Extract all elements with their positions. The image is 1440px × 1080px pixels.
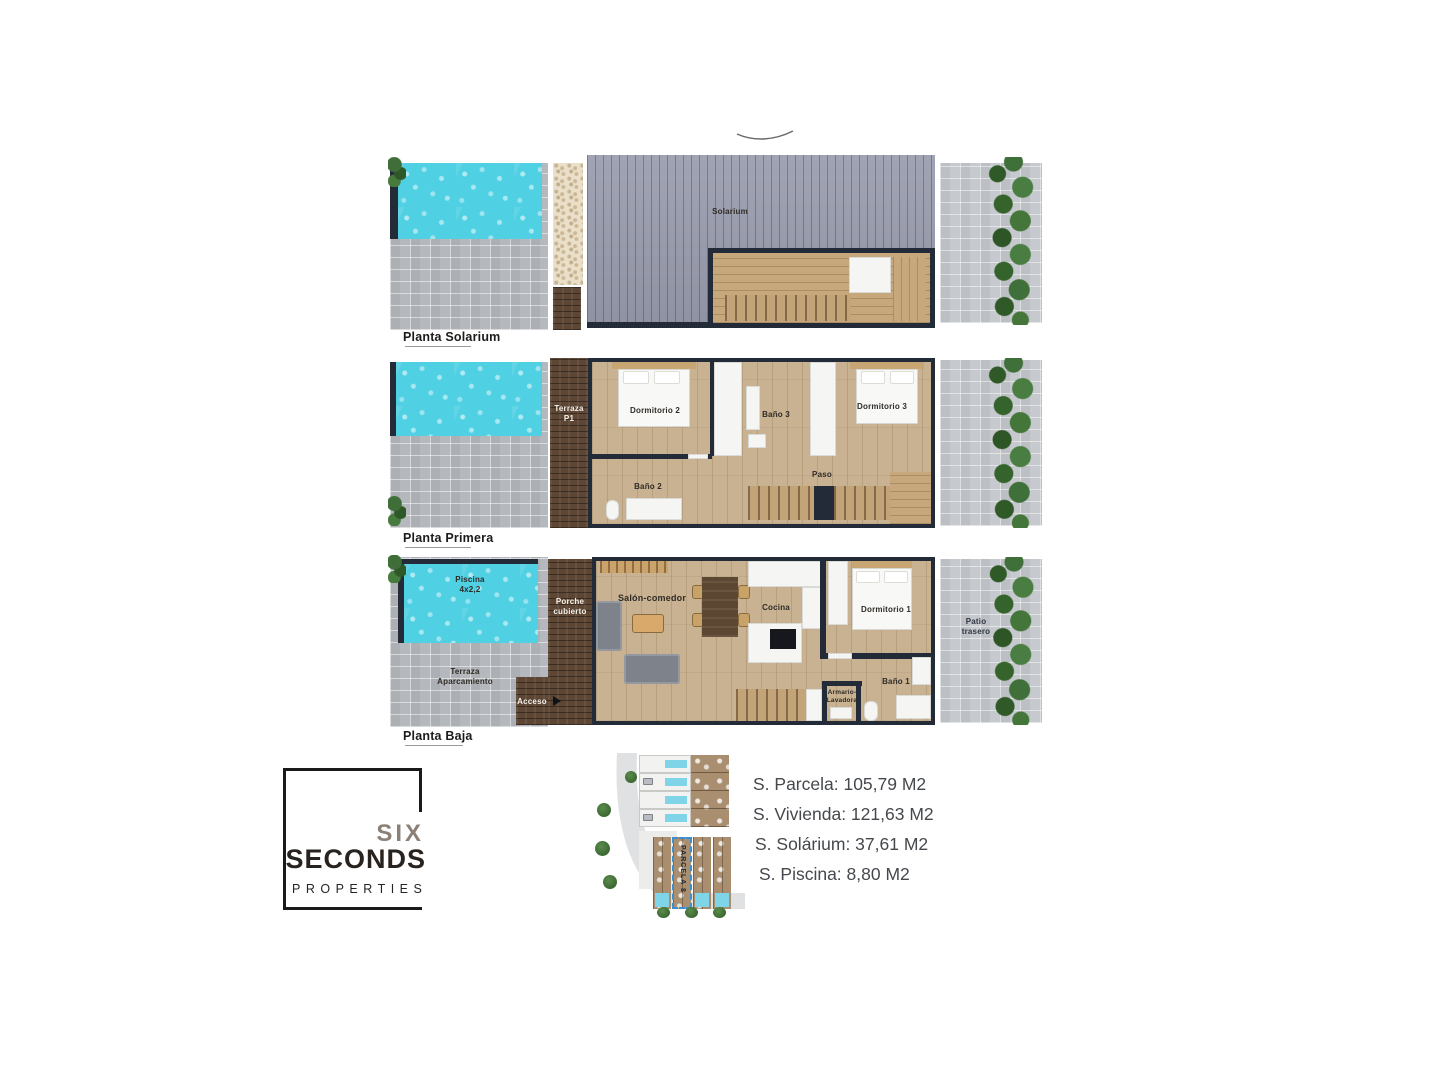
bed-headboard	[852, 561, 912, 568]
bathroom2-toilet	[606, 500, 619, 520]
site-parcel-highlight: PARCELA 8	[672, 837, 692, 909]
plan-solarium: Solarium	[390, 155, 1045, 330]
logo-border-right	[419, 768, 422, 812]
page-curl-mark	[735, 128, 795, 144]
room-label-bano3: Baño 3	[752, 410, 800, 420]
site-tree	[625, 771, 637, 783]
logo-border-top	[283, 768, 422, 771]
room-label-cocina: Cocina	[746, 603, 806, 613]
kitchen-counter	[748, 561, 822, 587]
sofa	[596, 601, 622, 651]
title-underline	[405, 346, 471, 347]
wardrobe	[828, 561, 848, 625]
room-label-dormitorio3: Dormitorio 3	[847, 402, 917, 412]
plan-primera: Terraza P1 Dormitorio 2 Baño 3 Dormitori…	[390, 358, 1045, 528]
dining-chair	[738, 585, 750, 599]
pillow	[654, 371, 680, 384]
washing-machine	[830, 707, 852, 719]
site-plan: PARCELA 8	[595, 753, 745, 918]
corner-plant	[388, 555, 406, 583]
stair-flight	[736, 689, 806, 721]
corner-plant	[388, 496, 406, 526]
site-parcel-label: PARCELA 8	[679, 845, 686, 893]
site-pool	[665, 778, 687, 786]
room-label-paso: Paso	[787, 470, 857, 480]
surface-stats: S. Parcela: 105,79 M2 S. Vivienda: 121,6…	[753, 774, 934, 894]
logo-text-properties: PROPERTIES	[292, 882, 427, 896]
dining-table	[702, 577, 738, 637]
plan-title-primera: Planta Primera	[403, 531, 493, 545]
site-tree	[685, 907, 698, 918]
pillow	[861, 371, 885, 384]
site-tree	[595, 841, 610, 856]
gravel-strip	[553, 163, 583, 285]
plan-baja: Terraza Aparcamiento Piscina 4x2,2 Porch…	[390, 557, 1045, 729]
logo-text-seconds: SECONDS	[285, 844, 426, 875]
bed-headboard	[850, 362, 924, 369]
sofa	[624, 654, 680, 684]
pillow	[856, 571, 880, 583]
site-pool	[665, 760, 687, 768]
stairwell-frame	[708, 248, 935, 328]
site-pool	[665, 796, 687, 804]
building-first-floor: Dormitorio 2 Baño 3 Dormitorio 3 Paso Ba…	[588, 358, 935, 528]
pillow	[890, 371, 914, 384]
stat-vivienda: S. Vivienda: 121,63 M2	[753, 804, 934, 825]
title-underline	[405, 547, 471, 548]
pool-top-view	[398, 163, 542, 239]
site-tree	[713, 907, 726, 918]
door-opening	[688, 454, 708, 459]
stair-side-deck	[893, 257, 925, 321]
bathroom2-double-sink	[626, 498, 682, 520]
site-car	[643, 814, 653, 821]
room-label-terraza-aparcamiento: Terraza Aparcamiento	[410, 667, 520, 687]
stair-treads	[725, 295, 851, 321]
room-label-solarium: Solarium	[690, 207, 770, 217]
room-label-porche: Porche cubierto	[548, 597, 592, 617]
bathroom3-sink	[746, 386, 760, 430]
tree-line	[985, 157, 1042, 325]
stat-parcela: S. Parcela: 105,79 M2	[753, 774, 934, 795]
bathroom1-shelf	[912, 657, 931, 685]
bathroom1-shower	[896, 695, 931, 719]
logo-border-bottom	[283, 907, 422, 910]
brochure-page: Solarium Planta Solarium Terraza P1 Dorm…	[0, 0, 1440, 1080]
site-pool	[715, 893, 729, 907]
room-label-bano2: Baño 2	[618, 482, 678, 492]
bed-headboard	[612, 362, 696, 369]
bathroom1-toilet	[864, 701, 878, 721]
room-label-salon: Salón-comedor	[612, 593, 692, 604]
site-tree	[597, 803, 611, 817]
stair-flight	[834, 486, 890, 520]
stair-flight	[748, 486, 814, 520]
corner-plant	[388, 157, 406, 187]
tree-line	[986, 557, 1042, 725]
stair-side-deck	[890, 472, 931, 524]
room-label-armario: Armario- Lavadora	[822, 689, 862, 705]
room-label-terraza-p1: Terraza P1	[550, 404, 588, 424]
stair-landing-white	[849, 257, 891, 293]
site-car	[643, 778, 653, 785]
corridor-closet	[810, 362, 836, 456]
entry-arrow-icon	[553, 696, 561, 706]
stair-landing-white	[806, 689, 822, 721]
pool-top-view	[396, 362, 542, 436]
terraza-p1-deck	[550, 358, 588, 528]
site-buildings-upper	[691, 755, 729, 827]
bathroom3-toilet	[748, 434, 766, 448]
room-label-piscina: Piscina 4x2,2	[420, 575, 520, 595]
title-underline	[405, 745, 463, 746]
coffee-table	[632, 614, 664, 633]
tree-line	[985, 358, 1042, 528]
site-pool	[665, 814, 687, 822]
door-opening	[828, 653, 852, 659]
plan-title-baja: Planta Baja	[403, 729, 473, 743]
site-tree	[603, 875, 617, 889]
sideboard	[600, 561, 668, 573]
pillow	[884, 571, 908, 583]
site-tree	[657, 907, 670, 918]
storage-deck	[553, 287, 581, 330]
interior-wall	[820, 561, 826, 657]
plan-title-solarium: Planta Solarium	[403, 330, 500, 344]
room-label-acceso: Acceso	[512, 697, 552, 707]
stat-solarium: S. Solárium: 37,61 M2	[753, 834, 934, 855]
wardrobe	[714, 362, 742, 456]
room-label-dormitorio2: Dormitorio 2	[610, 406, 700, 416]
site-pool	[695, 893, 709, 907]
six-seconds-logo: SIX SECONDS PROPERTIES	[283, 768, 422, 910]
stair-divider	[814, 486, 834, 520]
pillow	[623, 371, 649, 384]
building-ground-floor: Salón-comedor Cocina Dormitorio 1	[592, 557, 935, 725]
room-label-dormitorio1: Dormitorio 1	[846, 605, 926, 615]
stat-piscina: S. Piscina: 8,80 M2	[753, 864, 934, 885]
site-pool	[655, 893, 669, 907]
cooktop	[770, 629, 796, 649]
logo-border-left	[283, 768, 286, 910]
